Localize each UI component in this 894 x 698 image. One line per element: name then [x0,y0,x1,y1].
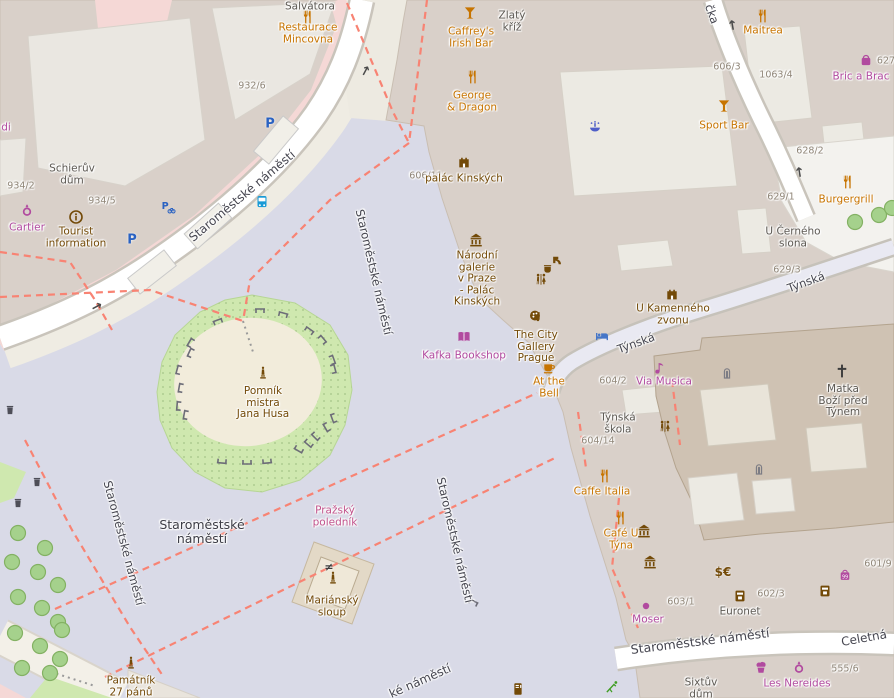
shop-label-partial-di-label: di [1,122,11,134]
museum-icon [637,524,652,539]
ring-icon [792,660,807,675]
george-and-dragon-label: George& Dragon [447,91,497,114]
fountain-icon [588,120,603,135]
house-number: 934/5 [88,196,115,207]
vending-icon [511,682,526,697]
euronet-icon [733,589,748,604]
mariansky-sloup-label: Mariánskýsloup [305,596,358,619]
u-cerneho-slona-label: U Černéhoslona [765,227,820,250]
moser-icon [639,599,654,614]
house-number: 601/9 [864,559,891,570]
oneway-arrow-icon: → [358,63,375,79]
schieruv-dum-label: Schierůvdům [49,164,95,187]
city-gallery-prague-icon [529,309,544,324]
at-the-bell-icon [542,360,557,375]
pamatnik-27-panu-label: Památník27 pánů [107,676,156,698]
meridian-marker-icon: ≠ [324,562,333,573]
bed-icon [595,329,610,344]
waste-basket-icon [11,496,26,511]
george-and-dragon-icon [465,70,480,85]
street-label-7: Týnská [615,330,656,356]
narodni-galerie-label: Národnígaleriev Praze- PalácKinských [454,250,500,308]
cafe-u-tyna-label: Café UTýna [604,529,639,552]
oneway-arrow-icon: → [89,299,105,316]
caffreys-irish-bar-label: Caffrey'sIrish Bar [448,27,494,50]
street-label-2: Staroměstské náměstí [434,476,477,604]
euronet-label: Euronet [719,606,760,618]
street-label-1: Staroměstské náměstí [353,208,396,336]
caffe-italia-icon [597,469,612,484]
house-number: 629/1 [767,192,794,203]
place-label: Staroměstskénáměstí [159,518,244,546]
parking-icon: P [127,234,137,247]
burgergrill-label: Burgergrill [819,194,874,206]
svg-text:P: P [162,201,169,212]
u-kamenneho-zvonu-icon [665,286,680,301]
church-door-icon [720,365,735,380]
house-number: 603/1 [667,597,694,608]
street-label-3: Staroměstské náměstí [101,479,148,607]
palac-kinskych-icon [457,154,472,169]
house-number: 628/2 [796,146,823,157]
caffe-italia-label: Caffe Italia [574,486,631,498]
street-label-0: Staroměstské náměstí [186,148,298,245]
sixtuv-dum-label: Sixtůvdům [685,678,718,698]
playground-icon [605,680,620,695]
map-labels-layer: Staroměstské náměstíStaroměstské náměstí… [0,0,894,698]
narodni-galerie-icon [469,233,484,248]
bus-icon [255,195,270,210]
sport-bar-label: Sport Bar [699,120,748,132]
street-label-9: Celetná [840,627,888,649]
prazsky-polednik-label: Pražskýpoledník [313,506,358,529]
street-label-4: Staroměstské náměstí [630,625,770,657]
museum-icon [643,555,658,570]
house-number: 629/3 [773,265,800,276]
maitrea-label: Maitrea [743,25,783,37]
currency-exchange-icon: $€ [715,566,732,578]
variety-store-icon: 99 [838,568,853,583]
at-the-bell-label: At theBell [533,377,565,400]
kafka-bookshop-icon [457,330,472,345]
via-musica-icon [653,361,668,376]
street-label-8: čka [702,2,722,25]
house-number: 627 [877,56,894,67]
cartier-label: Cartier [9,222,45,234]
bric-a-brac-icon [859,53,874,68]
bric-a-brac-label: Bric a Brac [832,71,889,83]
oneway-arrow-icon: → [726,19,741,32]
u-kamenneho-zvonu-label: U Kamennéhozvonu [636,304,710,327]
svg-text:99: 99 [842,574,848,580]
matka-bozi-pred-tynem-label: MatkaBoží předTýnem [818,384,867,419]
pomnik-mistra-jana-husa-label: PomníkmistraJana Husa [237,386,289,421]
cup-icon [541,262,556,277]
pamatnik-27-panu-icon [124,656,139,671]
tourist-information-label: Touristinformation [46,227,107,250]
pomnik-mistra-jana-husa-icon [256,366,271,381]
les-nereides-label: Les Nereides [763,678,830,690]
cartier-icon [20,203,35,218]
palac-kinskych-label: palác Kinských [425,173,503,185]
street-label-5: ké náměstí [387,661,453,698]
parking-bike-icon: P [161,200,176,215]
tourist-information-icon [69,210,84,225]
house-number: 932/6 [238,81,265,92]
house-number: 934/2 [7,181,34,192]
cafe-u-tyna-icon [613,511,628,526]
waste-basket-icon [30,475,45,490]
les-nereides-icon [754,660,769,675]
tynska-skola-label: Týnskáškola [600,413,635,436]
house-number: 602/3 [757,589,784,600]
house-number: 1063/4 [759,70,792,81]
caffreys-irish-bar-icon [463,6,478,21]
church-door-icon [752,461,767,476]
via-musica-label: Via Musica [636,376,692,388]
parking-icon: P [265,118,275,131]
restaurace-mincovna-label: RestauraceMincovna [279,23,338,46]
waste-basket-icon [3,403,18,418]
matka-bozi-pred-tynem-icon [835,364,850,379]
kafka-bookshop-label: Kafka Bookshop [422,350,506,362]
house-number: 604/2 [599,376,626,387]
salvatora-label: Salvátora [285,1,335,13]
toilets-icon [658,420,673,435]
oneway-arrow-icon: → [793,166,808,179]
atm-icon [818,584,833,599]
zlaty-kriz-label: Zlatýkříž [499,11,526,34]
house-number: 555/6 [831,664,858,675]
house-number: 606/3 [713,62,740,73]
maitrea-icon [755,9,770,24]
sport-bar-icon [717,99,732,114]
map-canvas[interactable]: Staroměstské náměstíStaroměstské náměstí… [0,0,894,698]
house-number: 604/14 [581,436,614,447]
burgergrill-icon [840,175,855,190]
moser-label: Moser [632,614,664,626]
